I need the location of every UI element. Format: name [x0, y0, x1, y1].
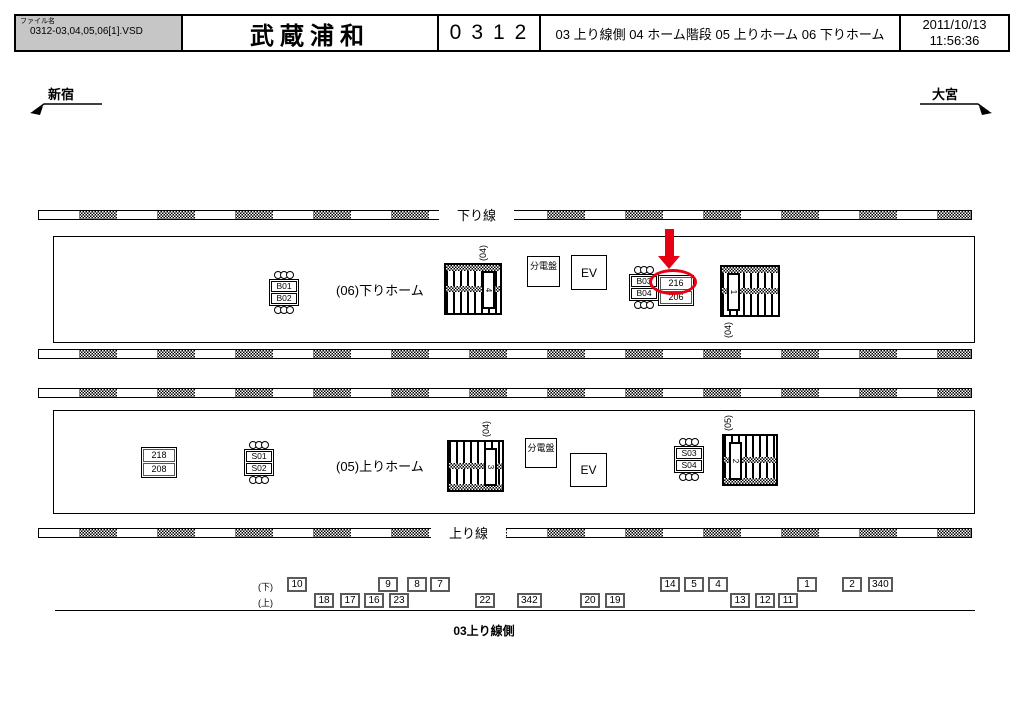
position-box-10: 10: [287, 577, 307, 592]
station-diagram: ファイル名 0312-03,04,05,06[1].VSD 武蔵浦和 0312 …: [0, 0, 1024, 724]
date-value: 2011/10/13: [922, 17, 986, 33]
right-direction: 大宮: [916, 86, 996, 118]
board-218-208: 218 208: [141, 447, 177, 478]
position-box-2: 2: [842, 577, 862, 592]
right-station-label: 大宮: [932, 87, 958, 102]
escalator-box: 2: [729, 442, 742, 480]
file-name-cell: ファイル名 0312-03,04,05,06[1].VSD: [16, 16, 181, 50]
title-block: ファイル名 0312-03,04,05,06[1].VSD 武蔵浦和 0312 …: [14, 14, 1010, 52]
board-label-218: 218: [143, 449, 175, 462]
position-box-23: 23: [389, 593, 409, 608]
position-box-8: 8: [407, 577, 427, 592]
highlight-ellipse: [649, 269, 697, 295]
escalator-box: 1: [727, 273, 740, 311]
position-box-340: 340: [868, 577, 893, 592]
position-box-1: 1: [797, 577, 817, 592]
position-box-20: 20: [580, 593, 600, 608]
position-box-342: 342: [517, 593, 542, 608]
platform-up-name: (05)上りホーム: [336, 456, 424, 475]
sign-dots: [250, 476, 268, 484]
stairs-04-up-left: 3: [447, 440, 504, 492]
elevator-up: EV: [570, 453, 607, 487]
datetime-cell: 2011/10/13 11:56:36: [899, 16, 1008, 50]
highlight-arrow-shaft: [665, 229, 674, 256]
number-row-down: 10987145412340: [0, 577, 1024, 593]
sign-dots: [680, 438, 698, 446]
stair-number-label: (04): [478, 245, 488, 261]
stairs-04-down-right: 1: [720, 265, 780, 317]
ad-sign-s03-s04: S03 S04: [674, 438, 704, 481]
station-name: 武蔵浦和: [181, 16, 437, 50]
platform-up: [53, 410, 975, 514]
sign-label: B02: [271, 293, 297, 304]
board-label-208: 208: [143, 463, 175, 476]
track-middle-2: [38, 388, 972, 398]
breaker-panel-down: 分電盤: [527, 256, 560, 287]
file-name-label: ファイル名: [20, 18, 55, 26]
sign-dots: [635, 301, 653, 309]
sign-dots: [250, 441, 268, 449]
stairs-05-up-right: 2: [722, 434, 778, 486]
stair-number-label: (04): [723, 322, 733, 338]
left-direction: 新宿: [26, 86, 106, 118]
platform-down-name: (06)下りホーム: [336, 280, 424, 299]
track-up-label: 上り線: [431, 523, 506, 544]
position-box-11: 11: [778, 593, 798, 608]
highlight-arrow-head: [658, 256, 680, 269]
track-middle-1: [38, 349, 972, 359]
sign-label: S03: [676, 448, 702, 459]
right-arrow-icon: 大宮: [916, 86, 996, 118]
sign-label: S04: [676, 460, 702, 471]
sign-dots: [275, 271, 293, 279]
position-box-4: 4: [708, 577, 728, 592]
elevator-down: EV: [571, 255, 607, 290]
stairs-04-down-left: 4: [444, 263, 502, 315]
escalator-box: 4: [482, 271, 495, 309]
position-box-16: 16: [364, 593, 384, 608]
left-arrow-icon: 新宿: [26, 86, 106, 118]
position-box-17: 17: [340, 593, 360, 608]
position-box-19: 19: [605, 593, 625, 608]
ad-sign-b01-b02: B01 B02: [269, 271, 299, 314]
track-down-label: 下り線: [439, 205, 514, 226]
position-box-14: 14: [660, 577, 680, 592]
position-box-9: 9: [378, 577, 398, 592]
track-down-line: 下り線: [38, 210, 972, 220]
bottom-caption: 03上り線側: [384, 622, 584, 639]
stair-number-label: (05): [723, 415, 733, 431]
time-value: 11:56:36: [930, 33, 980, 49]
sign-dots: [275, 306, 293, 314]
sign-label: S02: [246, 463, 272, 474]
ad-sign-s01-s02: S01 S02: [244, 441, 274, 484]
station-code: 0312: [437, 16, 539, 50]
position-box-5: 5: [684, 577, 704, 592]
number-row-up: 18171623223422019131211: [0, 593, 1024, 609]
position-box-12: 12: [755, 593, 775, 608]
position-box-22: 22: [475, 593, 495, 608]
position-box-7: 7: [430, 577, 450, 592]
platform-down: [53, 236, 975, 343]
position-box-18: 18: [314, 593, 334, 608]
left-station-label: 新宿: [48, 87, 74, 102]
bottom-separator: [55, 610, 975, 611]
sign-label: B01: [271, 281, 297, 292]
track-up-line: 上り線: [38, 528, 972, 538]
sign-label: S01: [246, 451, 272, 462]
file-name-value: 0312-03,04,05,06[1].VSD: [20, 26, 143, 38]
sign-dots: [680, 473, 698, 481]
breaker-panel-up: 分電盤: [525, 438, 557, 468]
stair-number-label: (04): [481, 421, 491, 437]
sheet-list: 03 上り線側 04 ホーム階段 05 上りホーム 06 下りホーム: [539, 16, 899, 50]
sign-dots: [635, 266, 653, 274]
escalator-box: 3: [484, 448, 497, 486]
position-box-13: 13: [730, 593, 750, 608]
